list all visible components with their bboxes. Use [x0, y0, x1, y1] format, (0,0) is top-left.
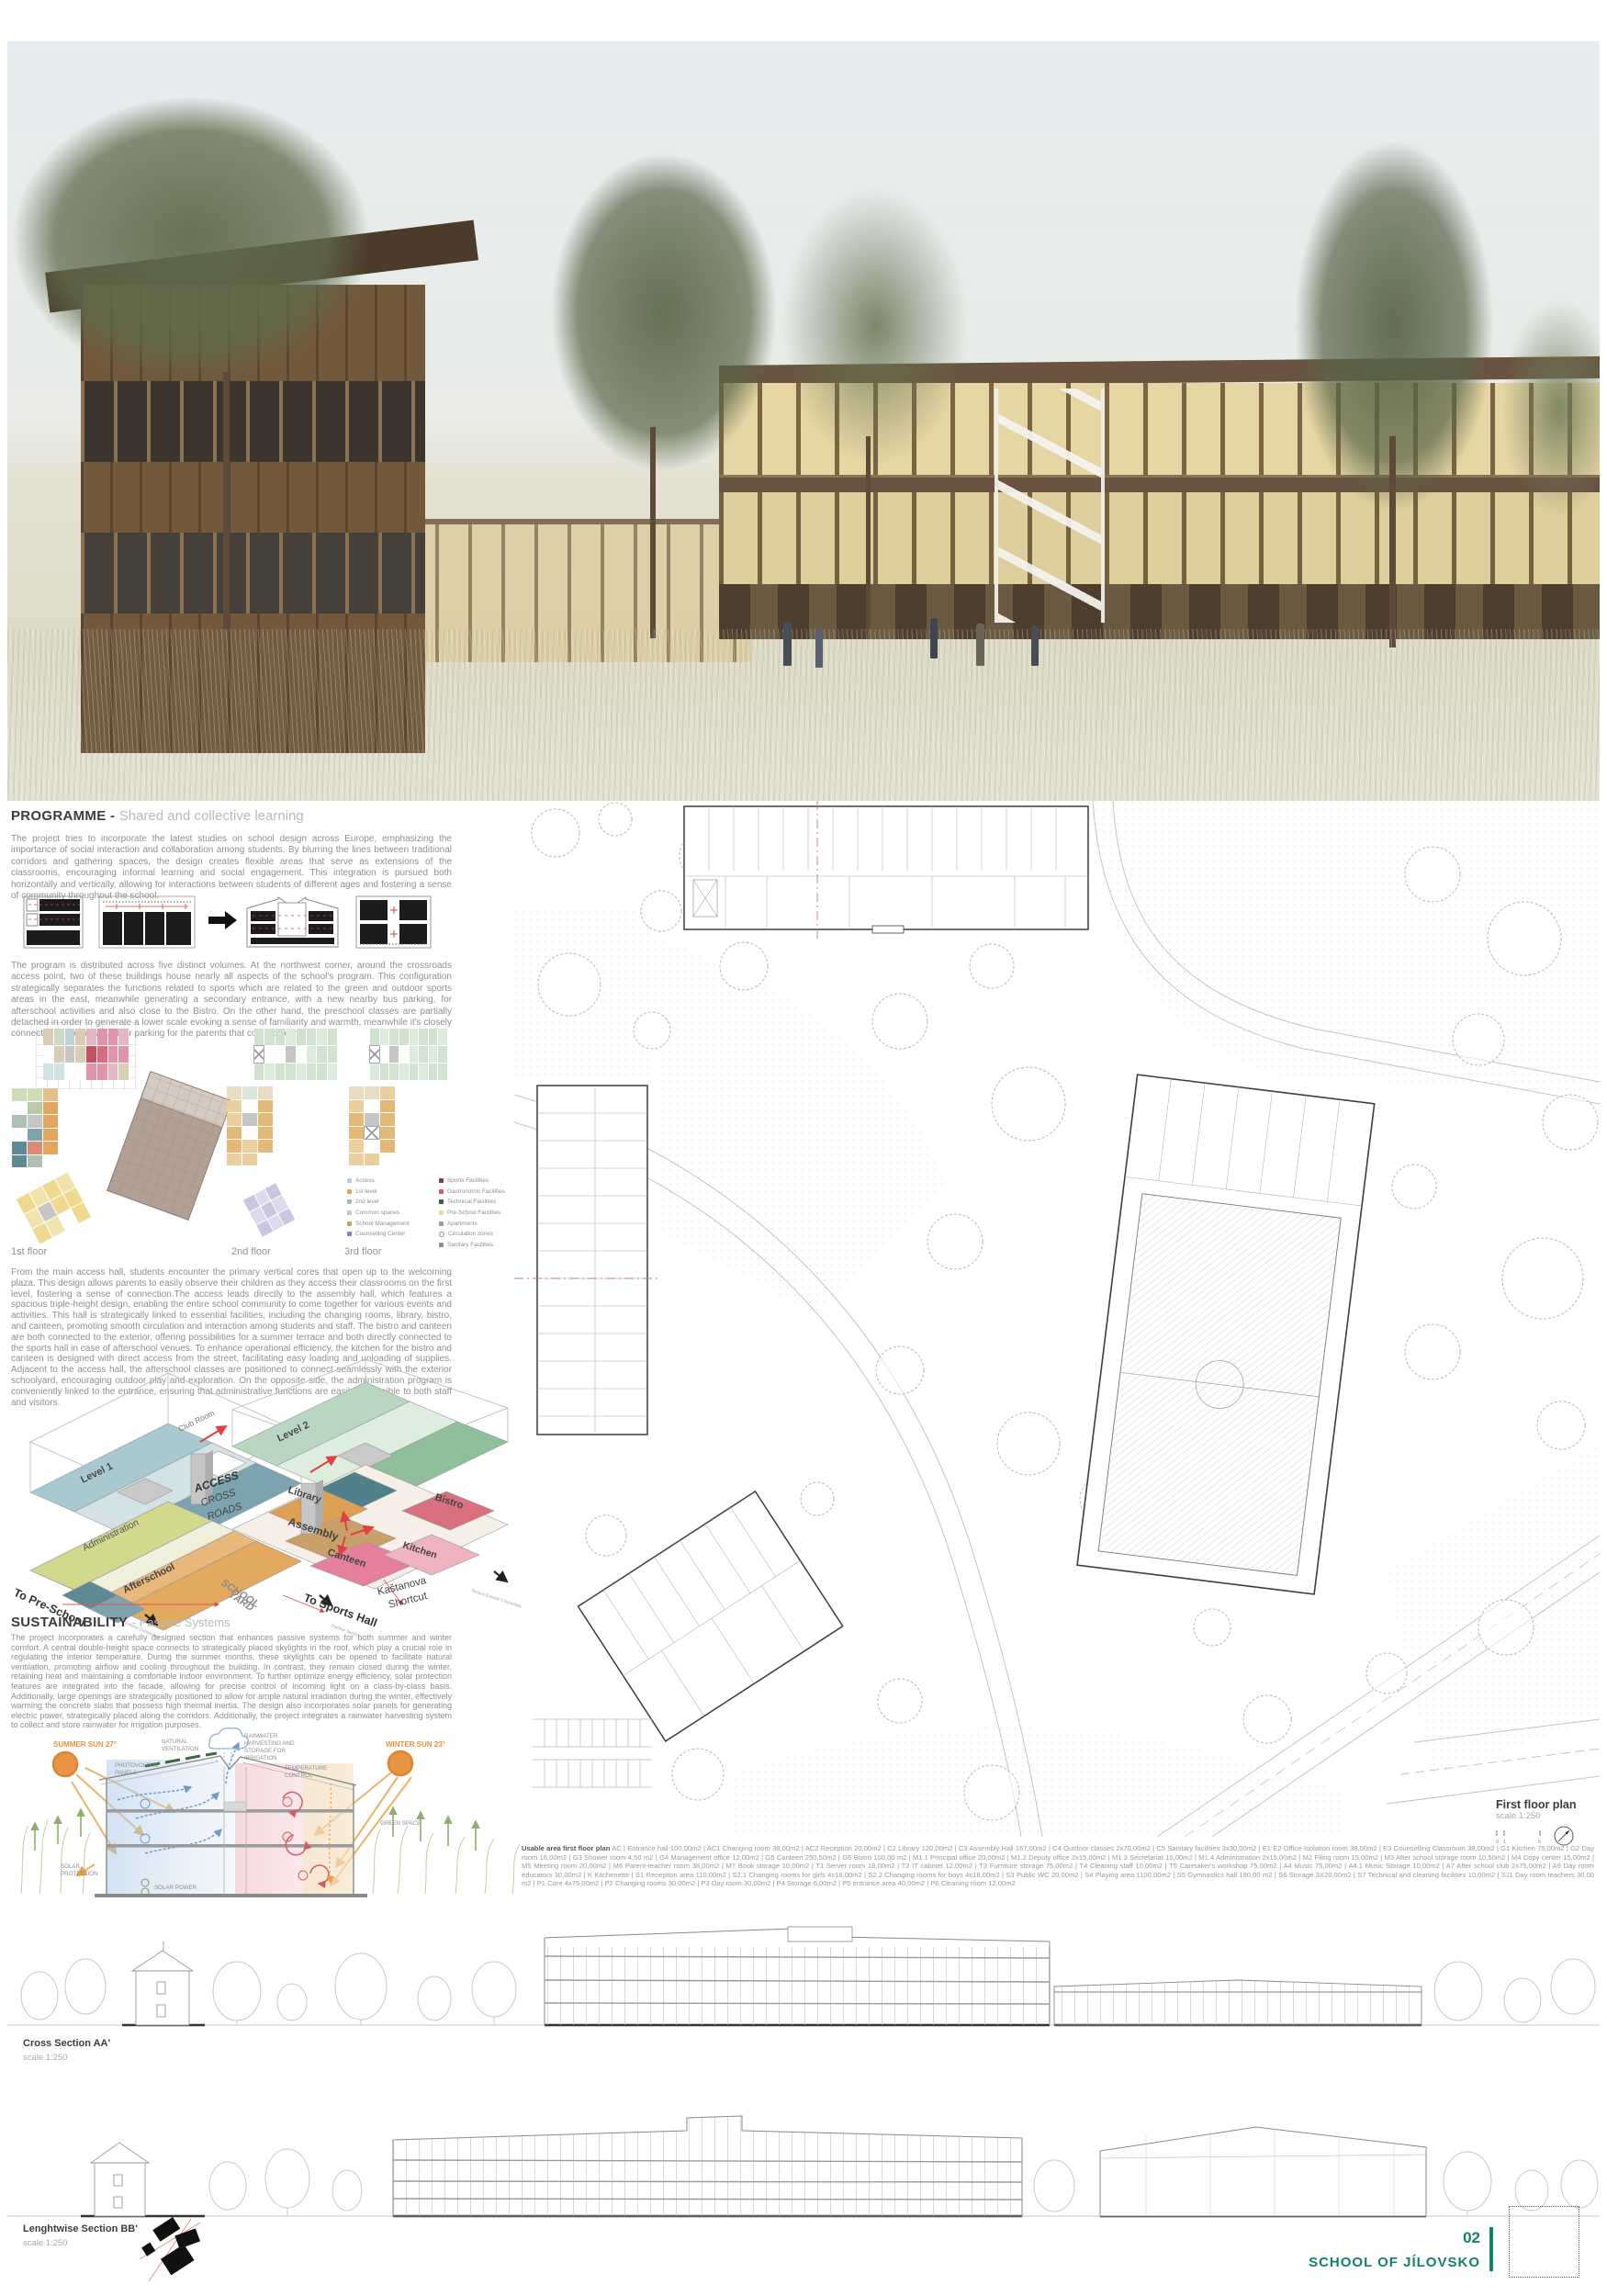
temperature-label-1: TEMPERATURE	[285, 1765, 327, 1772]
plan-left-wing	[537, 1086, 647, 1435]
stamp-placeholder-box	[1509, 2206, 1579, 2278]
scale-bar: 0 1 5	[1496, 1827, 1549, 1845]
person-silhouette	[930, 618, 938, 658]
programme-subtitle: Shared and collective learning	[119, 808, 304, 824]
lengthwise-section-scale: scale 1:250	[23, 2238, 68, 2248]
person-silhouette	[783, 622, 792, 666]
usable-area-label: Usable area first floor plan	[522, 1844, 610, 1852]
floor-label-1: 1st floor	[11, 1246, 47, 1257]
solar-protection-label-2: PROTECTION	[61, 1871, 98, 1877]
plan-parking	[533, 1719, 652, 1787]
floor-plan-2-wing	[227, 1086, 273, 1165]
legend-swatch	[347, 1178, 352, 1183]
section-low-building	[1054, 1980, 1422, 2025]
section-main-building	[393, 2116, 1022, 2216]
pv-label-1: PHOTOVOLTAIC	[115, 1762, 159, 1769]
usable-area-schedule: Usable area first floor plan AC | Entran…	[522, 1844, 1594, 1888]
legend-swatch	[439, 1221, 444, 1226]
floor-plan-2-main	[254, 1029, 337, 1080]
rainwater-label-4: IRRIGATION	[244, 1755, 277, 1761]
ventilation-label-2: VENTILATION	[162, 1746, 198, 1752]
axon-label-to-sports-hall: To Sports Hall	[302, 1592, 379, 1630]
plan-sports-hall	[1077, 1075, 1375, 1594]
legend-label: Gastronomic Facilities	[447, 1188, 505, 1195]
legend-label: School Management	[355, 1221, 410, 1227]
legend-label: 1st level	[355, 1188, 376, 1195]
programme-title: PROGRAMME -	[11, 808, 115, 824]
cross-section-drawing	[7, 1899, 1600, 2034]
lengthwise-section-drawing	[7, 2094, 1600, 2223]
sustainability-title: SUSTAINABILITY	[11, 1615, 128, 1630]
rainwater-label-3: STORAGE FOR	[244, 1748, 286, 1754]
sustainability-heading: SUSTAINABILITY - Passive Systems	[11, 1615, 230, 1631]
floor-plan-1-preschool	[17, 1172, 91, 1244]
summer-sun-icon	[53, 1752, 77, 1776]
project-title: SCHOOL OF JÍLOVSKO	[1157, 2255, 1480, 2270]
plan-legend-left: Access 1st level 2nd level Common spaces…	[347, 1176, 410, 1240]
arrow-icon	[207, 909, 238, 931]
legend-label: Circulation zones	[448, 1231, 493, 1237]
legend-label: Sanitary Facilities	[447, 1242, 493, 1248]
green-space-label: GREEN SPACE	[380, 1820, 421, 1827]
legend-label: Access	[355, 1177, 375, 1184]
presentation-board: PROGRAMME - Shared and collective learni…	[0, 0, 1607, 2296]
plan-scale: scale 1:250	[1496, 1811, 1606, 1821]
floor-plan-1-sportshall	[107, 1071, 232, 1221]
grass-foreground	[7, 629, 1600, 801]
legend-swatch	[347, 1210, 352, 1215]
plan-main-building	[684, 806, 1088, 933]
first-floor-site-plan	[514, 801, 1600, 1839]
cross-section-scale: scale 1:250	[23, 2053, 68, 2063]
hero-render	[7, 41, 1600, 801]
legend-swatch	[439, 1199, 444, 1204]
axonometric-diagram: Level 1 Level 2 Club Room ACCESS CROSS R…	[7, 1355, 533, 1649]
legend-swatch	[347, 1189, 352, 1194]
site-key-map	[138, 2217, 202, 2283]
ventilation-label-1: NATURAL	[162, 1739, 188, 1745]
winter-sun-label: WINTER SUN 23°	[386, 1740, 445, 1749]
floor-plan-3-wing	[349, 1086, 395, 1165]
concept-diagram-1	[23, 895, 84, 949]
concept-diagram-2	[98, 895, 196, 949]
person-silhouette	[815, 629, 823, 668]
floor-label-3: 3rd floor	[344, 1246, 381, 1257]
person-silhouette	[1031, 625, 1039, 666]
sustainability-paragraph: The project incorporates a carefully des…	[11, 1633, 452, 1730]
floor-label-2: 2nd floor	[231, 1246, 271, 1257]
tree-canopy	[742, 129, 1008, 523]
legend-label: Common spaces	[355, 1210, 399, 1216]
legend-label: Counselling Center	[355, 1231, 405, 1237]
legend-swatch	[439, 1178, 444, 1183]
axon-label-club-room: Club Room	[176, 1408, 216, 1434]
cross-section-title: Cross Section AA'	[23, 2038, 110, 2049]
section-house	[132, 1941, 193, 2025]
plan-title-block: First floor plan scale 1:250 0 1 5	[1496, 1798, 1606, 1847]
legend-label: 2nd level	[355, 1199, 379, 1205]
legend-label: Pre-School Facilities	[447, 1210, 500, 1216]
legend-swatch	[439, 1243, 444, 1247]
section-sports-hall	[1100, 2127, 1426, 2216]
legend-label: Technical Facilities	[447, 1199, 496, 1205]
floor-plan-3-main	[370, 1029, 447, 1080]
legend-label: Sports Facilities	[447, 1177, 489, 1184]
page-number: 02	[1286, 2229, 1480, 2247]
legend-swatch	[347, 1232, 352, 1236]
title-divider-bar	[1489, 2227, 1493, 2271]
winter-sun-icon	[388, 1751, 412, 1775]
solar-power-label: SOLAR POWER	[154, 1885, 197, 1891]
legend-swatch	[347, 1221, 352, 1226]
legend-swatch	[439, 1210, 444, 1215]
section-house	[91, 2143, 149, 2216]
floor-plan-1-main	[43, 1029, 129, 1080]
summer-sun-label: SUMMER SUN 27°	[53, 1740, 117, 1749]
legend-swatch	[439, 1232, 444, 1237]
plan-title: First floor plan	[1496, 1798, 1606, 1811]
temperature-label-2: CONTROL	[285, 1773, 313, 1779]
concept-diagram-3	[245, 895, 340, 949]
programme-paragraph-1: The project tries to incorporate the lat…	[11, 834, 452, 902]
floor-plan-1-wing	[12, 1088, 58, 1167]
lengthwise-section-title: Lenghtwise Section BB'	[23, 2223, 138, 2234]
sustainability-subtitle: - Passive Systems	[132, 1615, 230, 1629]
pv-label-2: PANELS	[115, 1770, 137, 1776]
render-exterior-stair	[995, 388, 1105, 623]
legend-swatch	[439, 1189, 444, 1194]
solar-protection-label-1: SOLAR	[61, 1863, 81, 1870]
concept-diagram-4	[355, 895, 432, 949]
rainwater-label-1: RAINWATER	[244, 1733, 278, 1739]
floor-plan-2-preschool	[243, 1183, 295, 1237]
cloud-icon	[209, 1728, 249, 1763]
plan-legend-right: Sports Facilities Gastronomic Facilities…	[439, 1176, 505, 1250]
rainwater-label-2: HARVESTING AND	[244, 1740, 295, 1747]
legend-label: Apartments	[447, 1221, 478, 1227]
programme-heading: PROGRAMME - Shared and collective learni…	[11, 808, 304, 825]
legend-swatch	[347, 1199, 352, 1204]
usable-area-text: AC | Entrance hall 100,00m2 | AC1 Changi…	[522, 1844, 1594, 1887]
person-silhouette	[976, 624, 984, 666]
section-main-building	[545, 1927, 1050, 2025]
